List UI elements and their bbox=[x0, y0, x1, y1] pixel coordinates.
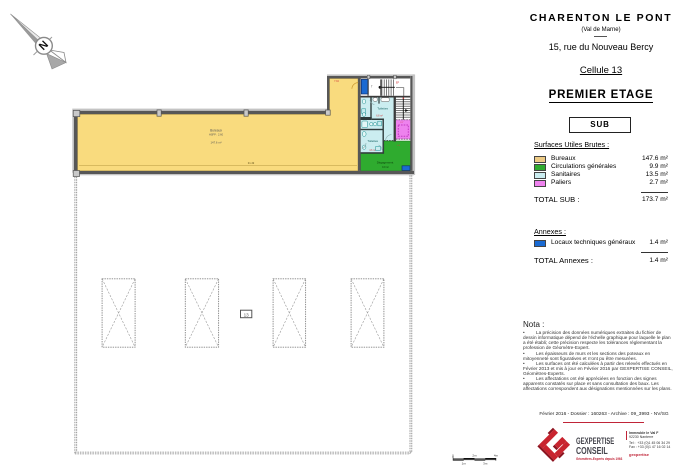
svg-text:1m: 1m bbox=[462, 462, 467, 466]
svg-text:Dégagement: Dégagement bbox=[377, 161, 394, 165]
svg-text:4m: 4m bbox=[494, 454, 499, 458]
svg-text:3m: 3m bbox=[483, 462, 488, 466]
svg-text:EP: EP bbox=[396, 81, 400, 84]
svg-text:6.8 m²: 6.8 m² bbox=[376, 115, 383, 118]
svg-text:0: 0 bbox=[452, 454, 454, 458]
svg-text:4.6 m²: 4.6 m² bbox=[369, 149, 376, 152]
svg-text:13: 13 bbox=[244, 312, 250, 317]
svg-text:HSFP : 2.60: HSFP : 2.60 bbox=[209, 132, 224, 136]
svg-text:7.94: 7.94 bbox=[334, 80, 339, 83]
svg-text:9.9 m²: 9.9 m² bbox=[382, 166, 389, 169]
svg-text:Toilettes: Toilettes bbox=[367, 139, 378, 143]
svg-text:31.49: 31.49 bbox=[248, 161, 255, 165]
svg-text:2m: 2m bbox=[472, 454, 477, 458]
svg-text:147.6 m²: 147.6 m² bbox=[210, 141, 221, 145]
svg-text:Bureaux: Bureaux bbox=[210, 129, 222, 133]
svg-text:Toilettes: Toilettes bbox=[377, 106, 388, 110]
